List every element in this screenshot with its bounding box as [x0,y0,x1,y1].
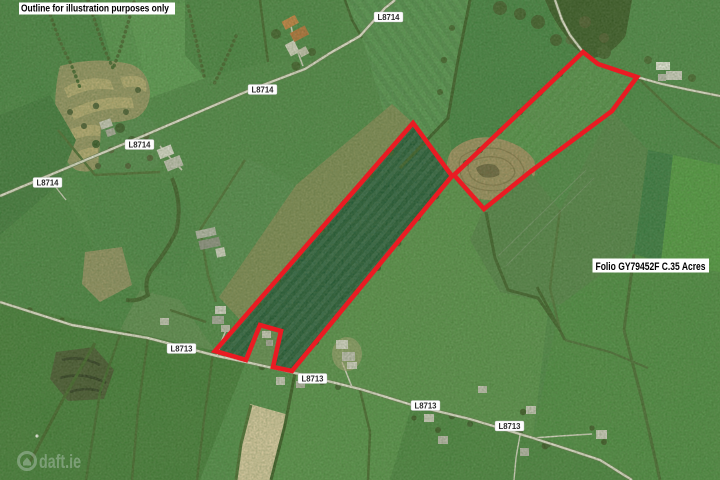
svg-text:daft.ie: daft.ie [39,452,81,473]
svg-text:Outline for illustration purpo: Outline for illustration purposes only [21,4,169,15]
svg-text:L8713: L8713 [171,345,194,354]
svg-text:L8713: L8713 [415,402,438,411]
svg-text:L8713: L8713 [302,375,325,384]
svg-text:L8713: L8713 [499,422,522,431]
svg-text:L8714: L8714 [37,179,60,188]
svg-text:L8714: L8714 [378,13,401,22]
svg-text:L8714: L8714 [129,141,152,150]
svg-text:Folio GY79452F C.35 Acres: Folio GY79452F C.35 Acres [596,261,706,273]
svg-text:L8714: L8714 [252,86,275,95]
